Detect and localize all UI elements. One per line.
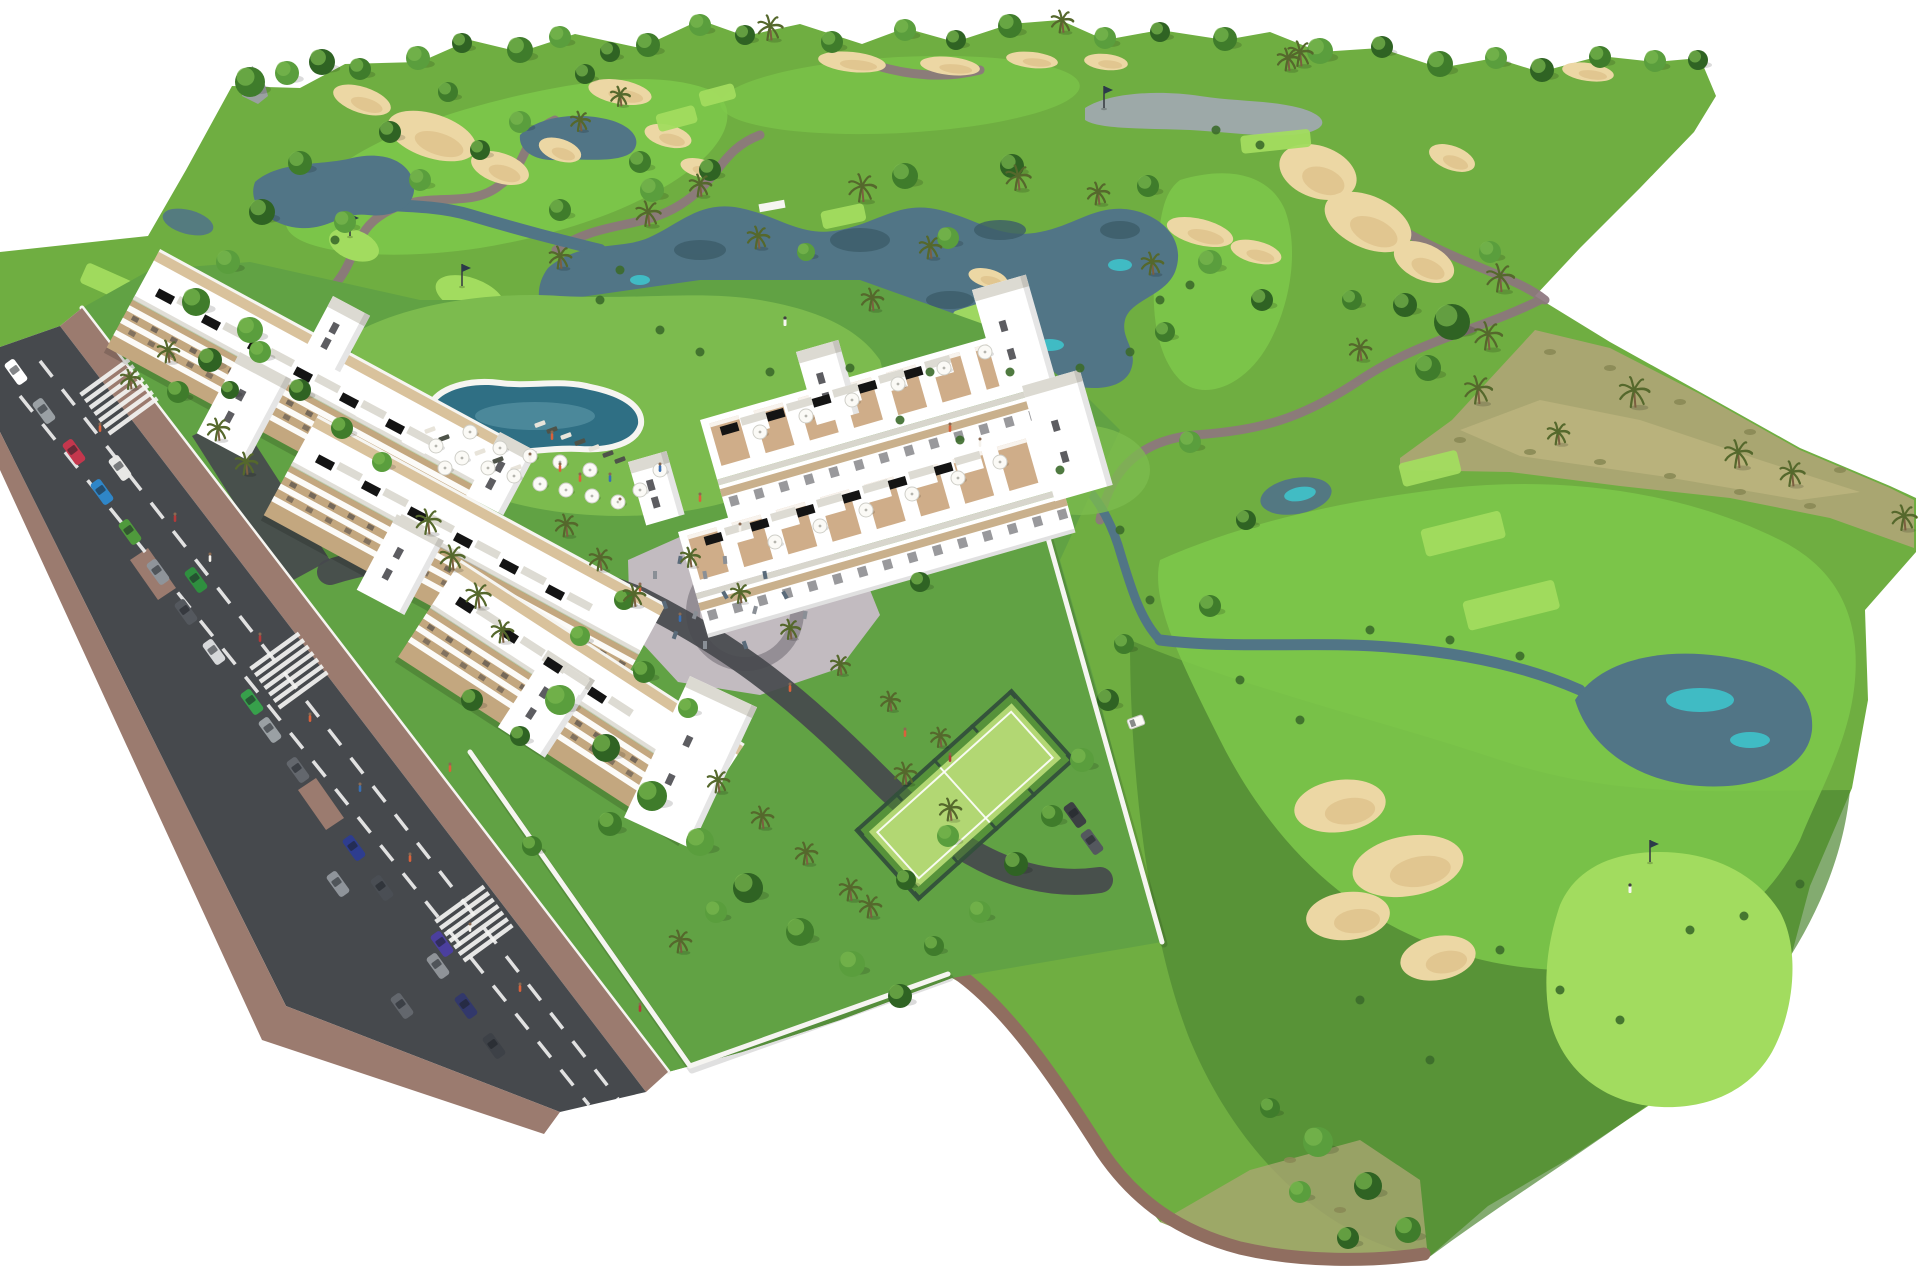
circle	[1416, 356, 1432, 372]
circle	[244, 460, 248, 464]
circle	[865, 509, 868, 512]
circle	[559, 463, 562, 466]
circle	[957, 477, 960, 480]
play-equipment	[703, 641, 707, 649]
circle	[1632, 388, 1636, 392]
ellipse	[598, 569, 611, 573]
rect	[639, 1005, 642, 1012]
circle	[410, 170, 423, 183]
circle	[788, 626, 792, 630]
dry-tuft	[1834, 467, 1846, 473]
circle	[911, 573, 923, 585]
ellipse	[938, 745, 949, 749]
circle	[756, 234, 760, 238]
ellipse	[1286, 69, 1299, 73]
bush	[1616, 1016, 1625, 1025]
rect	[699, 495, 702, 502]
circle	[565, 489, 568, 492]
circle	[739, 523, 742, 526]
circle	[911, 493, 914, 496]
person	[679, 613, 682, 623]
bush	[1686, 926, 1695, 935]
rect	[209, 555, 212, 562]
rect	[309, 715, 312, 722]
circle	[499, 447, 502, 450]
circle	[476, 592, 480, 596]
bush	[596, 296, 605, 305]
circle	[851, 399, 854, 402]
circle	[897, 871, 909, 883]
ellipse	[475, 606, 489, 611]
ellipse	[756, 247, 769, 251]
circle	[947, 31, 959, 43]
circle	[309, 713, 312, 716]
circle	[1096, 190, 1100, 194]
circle	[310, 50, 326, 66]
bush	[656, 326, 665, 335]
circle	[699, 493, 702, 496]
circle	[735, 874, 753, 892]
ellipse	[578, 129, 589, 133]
circle	[888, 698, 892, 702]
circle	[639, 489, 642, 492]
rect	[949, 425, 952, 432]
circle	[774, 541, 777, 544]
circle	[698, 182, 702, 186]
ellipse	[788, 637, 799, 641]
circle	[523, 837, 535, 849]
circle	[1151, 23, 1163, 35]
circle	[787, 919, 804, 936]
dry-tuft	[1524, 449, 1536, 455]
tree	[1688, 50, 1712, 70]
circle	[893, 164, 909, 180]
circle	[938, 228, 951, 241]
circle	[1298, 50, 1302, 54]
person	[979, 438, 982, 448]
bush	[1446, 636, 1455, 645]
circle	[1338, 1228, 1351, 1241]
circle	[598, 556, 602, 560]
circle	[250, 342, 263, 355]
circle	[1902, 514, 1906, 518]
circle	[838, 662, 842, 666]
tree	[1589, 46, 1615, 68]
circle	[576, 65, 588, 77]
person	[639, 1003, 642, 1013]
bush	[896, 416, 905, 425]
circle	[716, 778, 720, 782]
circle	[550, 27, 563, 40]
circle	[970, 902, 983, 915]
dry-tuft	[1454, 437, 1466, 443]
circle	[1790, 470, 1794, 474]
circle	[639, 782, 657, 800]
circle	[332, 418, 345, 431]
bush	[1236, 676, 1245, 685]
tree	[275, 61, 304, 85]
bush	[1126, 348, 1135, 357]
circle	[1305, 1128, 1323, 1146]
person	[619, 498, 622, 508]
person	[99, 423, 102, 433]
rect	[409, 855, 412, 862]
circle	[659, 463, 662, 466]
ellipse	[632, 605, 645, 609]
ellipse	[449, 568, 463, 573]
circle	[999, 461, 1002, 464]
circle	[462, 690, 475, 703]
play-equipment	[723, 556, 728, 564]
circle	[199, 349, 213, 363]
circle	[571, 627, 583, 639]
bush	[1296, 716, 1305, 725]
ellipse	[425, 532, 439, 537]
circle	[979, 438, 982, 441]
circle	[618, 93, 622, 97]
rect	[259, 635, 262, 642]
golfer	[1628, 883, 1631, 893]
bush	[1356, 996, 1365, 1005]
dry-tuft	[1284, 1157, 1296, 1163]
dry-tuft	[1604, 365, 1616, 371]
circle	[637, 34, 651, 48]
rect	[979, 440, 982, 447]
ellipse	[564, 535, 577, 539]
bush	[1426, 1056, 1435, 1065]
circle	[250, 200, 266, 216]
rect	[551, 433, 554, 440]
circle	[1428, 52, 1444, 68]
dry-tuft	[1744, 429, 1756, 435]
circle	[895, 20, 908, 33]
circle	[589, 469, 592, 472]
ellipse	[928, 257, 941, 261]
ellipse	[645, 224, 659, 229]
ellipse	[870, 309, 883, 313]
circle	[500, 628, 504, 632]
ellipse	[698, 195, 711, 199]
circle	[1476, 386, 1480, 390]
ellipse	[1631, 405, 1649, 411]
ellipse	[903, 783, 916, 787]
person	[309, 713, 312, 723]
rect	[469, 925, 472, 932]
bush	[331, 236, 340, 245]
circle	[938, 826, 951, 839]
circle	[350, 59, 363, 72]
circle	[897, 383, 900, 386]
person	[949, 423, 952, 433]
circle	[1261, 1099, 1273, 1111]
bush	[1146, 596, 1155, 605]
person	[659, 463, 662, 473]
tree	[1485, 47, 1511, 69]
circle	[759, 431, 762, 434]
circle	[868, 903, 872, 907]
circle	[904, 728, 907, 731]
circle	[679, 613, 682, 616]
circle	[579, 473, 582, 476]
ellipse	[244, 473, 257, 477]
dry-tuft	[1804, 503, 1816, 509]
circle	[426, 518, 430, 522]
dry-tuft	[1594, 459, 1606, 465]
bush	[1740, 912, 1749, 921]
rect	[174, 515, 177, 522]
dry-tuft	[1544, 349, 1556, 355]
circle	[805, 415, 808, 418]
circle	[949, 753, 952, 756]
play-equipment	[653, 571, 657, 579]
bush	[696, 348, 705, 357]
circle	[99, 423, 102, 426]
circle	[550, 200, 563, 213]
circle	[1343, 291, 1355, 303]
ellipse	[459, 286, 465, 288]
bush	[1496, 946, 1505, 955]
circle	[511, 727, 523, 739]
circle	[903, 770, 907, 774]
person	[949, 753, 952, 763]
rect	[659, 465, 662, 472]
ellipse	[1297, 64, 1311, 69]
circle	[632, 592, 636, 596]
circle	[1372, 37, 1385, 50]
bush	[1116, 526, 1125, 535]
circle	[407, 47, 421, 61]
ellipse	[848, 899, 861, 903]
ellipse	[558, 267, 571, 271]
circle	[840, 952, 856, 968]
golfer	[783, 316, 786, 326]
circle	[1358, 346, 1362, 350]
rect	[1629, 886, 1632, 893]
circle	[687, 829, 704, 846]
ellipse	[1015, 188, 1029, 193]
person	[359, 783, 362, 793]
ellipse	[216, 439, 229, 443]
circle	[217, 251, 231, 265]
person	[699, 493, 702, 503]
bush	[1156, 296, 1165, 305]
bush	[1256, 141, 1265, 150]
rect	[609, 475, 612, 482]
ellipse	[166, 361, 179, 365]
ellipse	[1647, 862, 1653, 864]
bush	[926, 368, 935, 377]
person	[789, 683, 792, 693]
circle	[943, 367, 946, 370]
circle	[1556, 430, 1560, 434]
circle	[449, 763, 452, 766]
bush	[846, 364, 855, 373]
circle	[168, 382, 181, 395]
ellipse	[1901, 528, 1915, 533]
circle	[889, 985, 903, 999]
circle	[453, 34, 465, 46]
circle	[551, 431, 554, 434]
circle	[1156, 323, 1168, 335]
circle	[444, 467, 447, 470]
rect	[904, 730, 907, 737]
circle	[760, 814, 764, 818]
circle	[380, 122, 393, 135]
rect	[579, 475, 582, 482]
circle	[1180, 432, 1193, 445]
circle	[508, 38, 524, 54]
circle	[450, 554, 454, 558]
ellipse	[347, 236, 353, 238]
circle	[860, 184, 864, 188]
ellipse	[804, 863, 817, 867]
bush	[1186, 281, 1195, 290]
circle	[690, 15, 703, 28]
bush	[1006, 368, 1015, 377]
circle	[700, 160, 713, 173]
scene-svg	[0, 0, 1920, 1280]
circle	[558, 254, 562, 258]
circle	[1480, 242, 1493, 255]
bush	[1796, 880, 1805, 889]
circle	[435, 445, 438, 448]
circle	[1486, 48, 1499, 61]
circle	[1237, 511, 1249, 523]
ellipse	[1556, 443, 1569, 447]
ellipse	[678, 951, 691, 955]
person	[609, 473, 612, 483]
circle	[209, 553, 212, 556]
circle	[373, 453, 385, 465]
circle	[1355, 1173, 1372, 1190]
circle	[128, 376, 132, 380]
circle	[409, 853, 412, 856]
ellipse	[128, 387, 139, 391]
rect	[679, 615, 682, 622]
circle	[1736, 450, 1740, 454]
circle	[928, 244, 932, 248]
dry-tuft	[1664, 473, 1676, 479]
circle	[593, 735, 610, 752]
circle	[222, 381, 233, 392]
person	[529, 453, 532, 463]
rect	[619, 500, 622, 507]
circle	[679, 699, 691, 711]
circle	[848, 886, 852, 890]
circle	[1531, 59, 1545, 73]
circle	[1150, 260, 1154, 264]
bush	[616, 266, 625, 275]
circle	[938, 734, 942, 738]
ellipse	[1096, 203, 1109, 207]
circle	[736, 26, 748, 38]
circle	[601, 43, 613, 55]
circle	[469, 431, 472, 434]
circle	[1252, 290, 1265, 303]
circle	[1286, 56, 1290, 60]
circle	[599, 813, 613, 827]
circle	[539, 483, 542, 486]
circle	[688, 554, 692, 558]
circle	[641, 179, 655, 193]
ellipse	[738, 601, 749, 605]
circle	[166, 348, 170, 352]
circle	[706, 902, 719, 915]
rect	[559, 465, 562, 472]
ellipse	[1789, 484, 1803, 489]
circle	[630, 152, 643, 165]
circle	[984, 351, 987, 354]
circle	[1138, 176, 1151, 189]
circle	[510, 112, 523, 125]
person	[259, 633, 262, 643]
circle	[639, 583, 642, 586]
circle	[591, 495, 594, 498]
tree	[1427, 51, 1458, 77]
rect	[529, 455, 532, 462]
circle	[1628, 883, 1631, 886]
ellipse	[618, 104, 629, 108]
circle	[948, 806, 952, 810]
aerial-render	[0, 0, 1920, 1280]
ellipse	[868, 916, 881, 920]
circle	[1214, 28, 1228, 42]
dry-tuft	[1734, 489, 1746, 495]
circle	[290, 380, 303, 393]
circle	[678, 938, 682, 942]
circle	[289, 152, 303, 166]
ellipse	[1101, 108, 1107, 110]
rect	[789, 685, 792, 692]
ellipse	[1485, 348, 1501, 353]
person	[551, 431, 554, 441]
circle	[359, 783, 362, 786]
circle	[999, 15, 1013, 29]
ellipse	[760, 827, 773, 831]
bush	[1516, 652, 1525, 661]
circle	[738, 590, 742, 594]
person	[579, 473, 582, 483]
circle	[1042, 806, 1055, 819]
rect	[949, 755, 952, 762]
ellipse	[767, 38, 781, 43]
tree	[1371, 36, 1397, 58]
ellipse	[1475, 402, 1491, 407]
person	[739, 523, 742, 533]
bush	[1212, 126, 1221, 135]
dry-tuft	[1674, 399, 1686, 405]
circle	[1498, 274, 1502, 278]
rect	[519, 985, 522, 992]
circle	[1396, 1218, 1412, 1234]
person	[519, 983, 522, 993]
bush	[766, 368, 775, 377]
person	[209, 553, 212, 563]
circle	[513, 475, 516, 478]
circle	[1486, 332, 1490, 336]
circle	[1115, 635, 1127, 647]
circle	[578, 118, 582, 122]
ellipse	[1150, 273, 1163, 277]
circle	[487, 467, 490, 470]
green-main-southeast	[1546, 852, 1792, 1107]
circle	[1590, 47, 1603, 60]
circle	[335, 212, 348, 225]
circle	[619, 498, 622, 501]
circle	[783, 316, 786, 319]
circle	[238, 318, 254, 334]
circle	[870, 296, 874, 300]
